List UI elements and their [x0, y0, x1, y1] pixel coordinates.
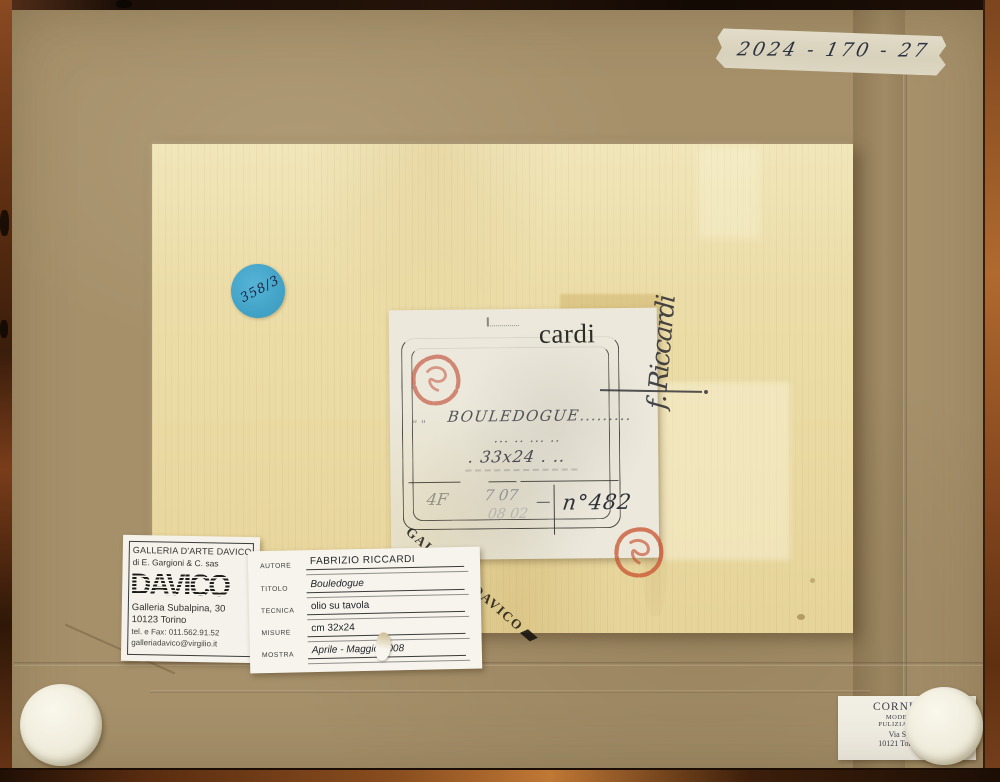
sticker-number: 358/3 [238, 273, 283, 306]
panel-stain-dot [810, 578, 815, 583]
row-key: TECNICA [261, 607, 294, 615]
red-circular-stamp [406, 352, 464, 408]
frame-dark-mark [0, 320, 8, 338]
row-value: Bouledogue [306, 576, 464, 593]
size-dots-post: . .. [534, 447, 567, 466]
photo-back-of-framed-painting: cardi " " BOULEDOGUE......... ... .. ...… [0, 0, 1000, 782]
pencil-code-2: 7 07 [483, 486, 519, 504]
felt-pad-left [20, 684, 102, 766]
davico-logo-stripes [130, 570, 250, 602]
masking-tape: 2024 - 170 - 27 [716, 28, 947, 76]
row-key: AUTORE [260, 563, 291, 571]
tape-inventory-number: 2024 - 170 - 27 [735, 38, 931, 61]
artwork-data-label: AUTORE FABRIZIO RICCARDI TITOLO Bouledog… [248, 547, 483, 674]
artwork-title-handwritten: BOULEDOGUE......... [447, 406, 633, 426]
pencil-code-3: 08 02 [487, 506, 529, 522]
faded-print-mark [487, 317, 519, 326]
row-key: MOSTRA [262, 651, 294, 659]
dotted-rule: ... .. ... .. [493, 431, 562, 447]
row-key: MISURE [261, 630, 291, 638]
frame-dark-mark [0, 210, 9, 236]
davico-logo: DAVICO [130, 570, 250, 602]
row-value: FABRIZIO RICCARDI [306, 553, 464, 570]
title-dots: ......... [579, 406, 633, 425]
frame-edge-top [0, 0, 1000, 10]
panel-stain-dot [797, 614, 805, 620]
stamp-logo-blob [520, 629, 538, 641]
frame-edge-bottom [0, 768, 1000, 782]
pen-dash [537, 502, 550, 503]
size-handwritten: . 33x24 . .. [467, 447, 567, 467]
cardboard-shade [853, 10, 905, 772]
felt-pad-right [905, 687, 983, 765]
cardboard-crease-vertical [903, 60, 907, 710]
inventory-number-handwritten: n°482 [561, 490, 633, 515]
gallery-subname: di E. Gargioni & C. sas [133, 557, 250, 569]
gallery-phone: tel. e Fax: 011.562.91.52 [131, 627, 248, 638]
row-key: TITOLO [260, 586, 288, 594]
cardboard-crease-horizontal-2 [150, 690, 870, 693]
gallery-address-city: 10123 Torino [132, 614, 249, 627]
gallery-label: GALLERIA D'ARTE DAVICO di E. Gargioni & … [121, 535, 260, 663]
size-text: 33x24 [479, 447, 536, 467]
gallery-name: GALLERIA D'ARTE DAVICO [133, 545, 250, 557]
label-row-mostra: MOSTRA Aprile - Maggio 2008 [262, 642, 472, 668]
frame-edge-right [983, 0, 1000, 782]
ditto-marks: " " [411, 418, 426, 431]
letterhead-fragment: cardi [539, 318, 596, 350]
frame-edge-left [0, 0, 12, 782]
row-value: olio su tavola [307, 598, 465, 615]
tape-residue-patch [698, 147, 760, 239]
blue-inventory-sticker: 358/3 [231, 264, 285, 318]
pencil-code-1: 4F [425, 490, 449, 509]
gallery-address-street: Galleria Subalpina, 30 [132, 602, 249, 615]
label-row-autore: AUTORE FABRIZIO RICCARDI [260, 553, 470, 579]
frame-dark-mark [116, 0, 132, 8]
title-text: BOULEDOGUE [447, 406, 581, 425]
